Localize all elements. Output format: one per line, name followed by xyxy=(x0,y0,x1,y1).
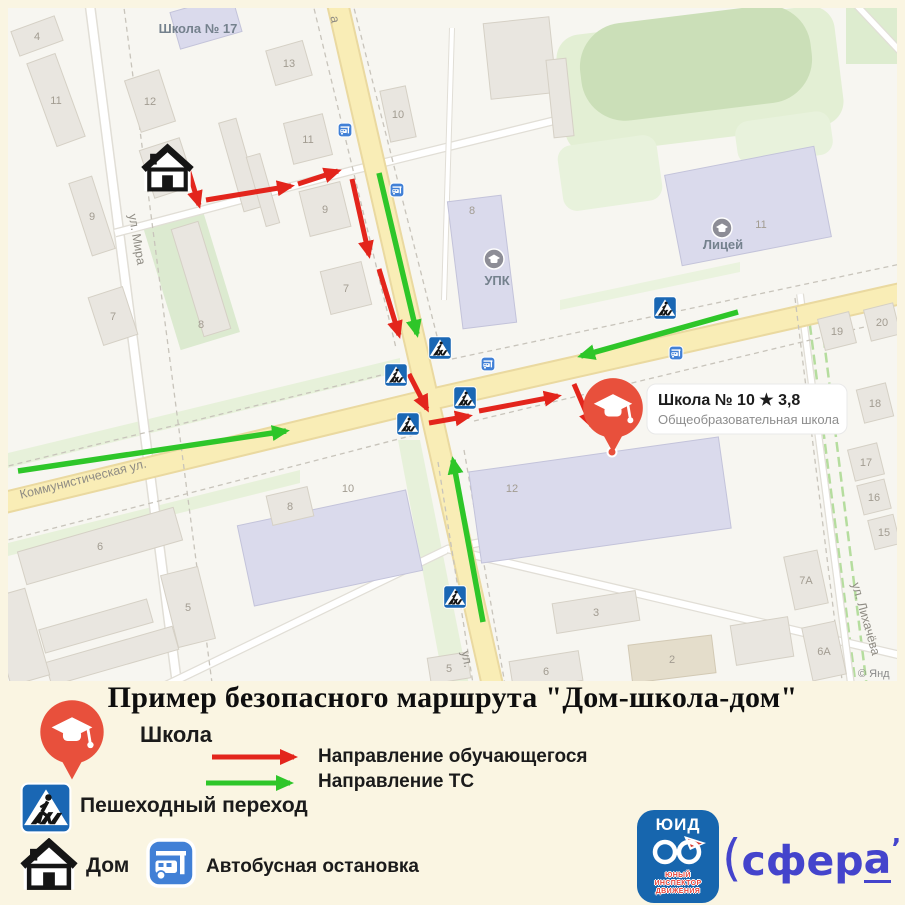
pedestrian-crossing-sign xyxy=(444,586,467,609)
map: 41112139871011978111920181716157A6A10126… xyxy=(8,8,897,681)
building-number: 7 xyxy=(343,283,349,295)
building-number: 5 xyxy=(185,602,191,614)
building-number: 12 xyxy=(144,96,156,108)
poi-label: Школа № 17 xyxy=(159,21,238,36)
map-copyright: © Янд xyxy=(858,668,890,680)
building xyxy=(483,17,557,99)
pedestrian-crossing-sign xyxy=(385,364,408,387)
poi-label: УПК xyxy=(484,273,509,288)
poi-education-icon xyxy=(712,218,732,238)
building-number: 8 xyxy=(287,501,293,513)
page-title: Пример безопасного маршрута "Дом-школа-д… xyxy=(0,681,905,715)
bus-stop-marker xyxy=(669,346,683,360)
bus-stop-icon xyxy=(146,838,196,888)
building-number: 2 xyxy=(669,654,675,666)
home-icon xyxy=(20,838,78,894)
building-number: 15 xyxy=(878,527,890,539)
building xyxy=(730,617,794,666)
building-number: 10 xyxy=(342,483,354,495)
school-callout-subtitle: Общеобразовательная школа xyxy=(658,412,840,427)
building-number: 9 xyxy=(322,204,328,216)
red-arrow-icon xyxy=(208,744,318,770)
building-number: 12 xyxy=(506,483,518,495)
poster: { "title": "Пример безопасного маршрута … xyxy=(0,0,905,905)
building-number: 8 xyxy=(198,319,204,331)
uid-bicycle-infinity-icon xyxy=(647,835,709,865)
uid-logo: ЮИД ЮНЫЙ ИНСПЕКТОР ДВИЖЕНИЯ xyxy=(637,810,719,903)
legend-home-label: Дом xyxy=(86,854,129,878)
building-number: 9 xyxy=(89,211,95,223)
legend-vehicle-direction-label: Направление ТС xyxy=(318,771,474,793)
pedestrian-crossing-sign-icon xyxy=(20,782,72,834)
green-arrow-icon xyxy=(202,770,314,796)
building-number: 7A xyxy=(799,575,813,587)
school-callout-title: Школа № 10 ★ 3,8 xyxy=(658,392,800,409)
building-number: 11 xyxy=(755,219,766,231)
building-number: 7 xyxy=(110,311,116,323)
building-number: 10 xyxy=(392,109,404,121)
building-number: 20 xyxy=(876,317,888,329)
building-number: 6 xyxy=(97,541,103,553)
legend-student-direction-label: Направление обучающегося xyxy=(318,746,588,768)
uid-logo-title: ЮИД xyxy=(637,815,719,835)
building-number: 6A xyxy=(817,646,831,658)
sfera-logo: (сфера’) xyxy=(722,836,905,886)
building-number: 5 xyxy=(446,663,452,675)
pedestrian-crossing-sign xyxy=(454,387,477,410)
building-number: 11 xyxy=(50,95,61,107)
building-number: 3 xyxy=(593,607,599,619)
building-number: 4 xyxy=(34,31,40,43)
uid-logo-subtitle: ЮНЫЙ ИНСПЕКТОР ДВИЖЕНИЯ xyxy=(637,872,719,896)
building-number: 17 xyxy=(860,457,872,469)
building-number: 16 xyxy=(868,492,880,504)
bus-stop-marker xyxy=(338,123,352,137)
building-number: 18 xyxy=(869,398,881,410)
legend-school-label: Школа xyxy=(140,722,212,748)
poi-label: Лицей xyxy=(703,237,743,252)
legend-bus-label: Автобусная остановка xyxy=(206,856,419,878)
bus-stop-marker xyxy=(390,183,404,197)
school-pin-icon xyxy=(28,698,116,784)
bus-stop-marker xyxy=(481,357,495,371)
legend-pedestrian-label: Пешеходный переход xyxy=(80,794,308,818)
building-number: 13 xyxy=(283,58,295,70)
building-number: 6 xyxy=(543,666,549,678)
map-canvas: 41112139871011978111920181716157A6A10126… xyxy=(8,8,897,681)
building-number: 19 xyxy=(831,326,843,338)
pedestrian-crossing-sign xyxy=(654,297,677,320)
pedestrian-crossing-sign xyxy=(429,337,452,360)
pedestrian-crossing-sign xyxy=(397,413,420,436)
building-number: 8 xyxy=(469,205,475,217)
poi-education-icon xyxy=(484,249,504,269)
building-number: 11 xyxy=(302,134,313,146)
